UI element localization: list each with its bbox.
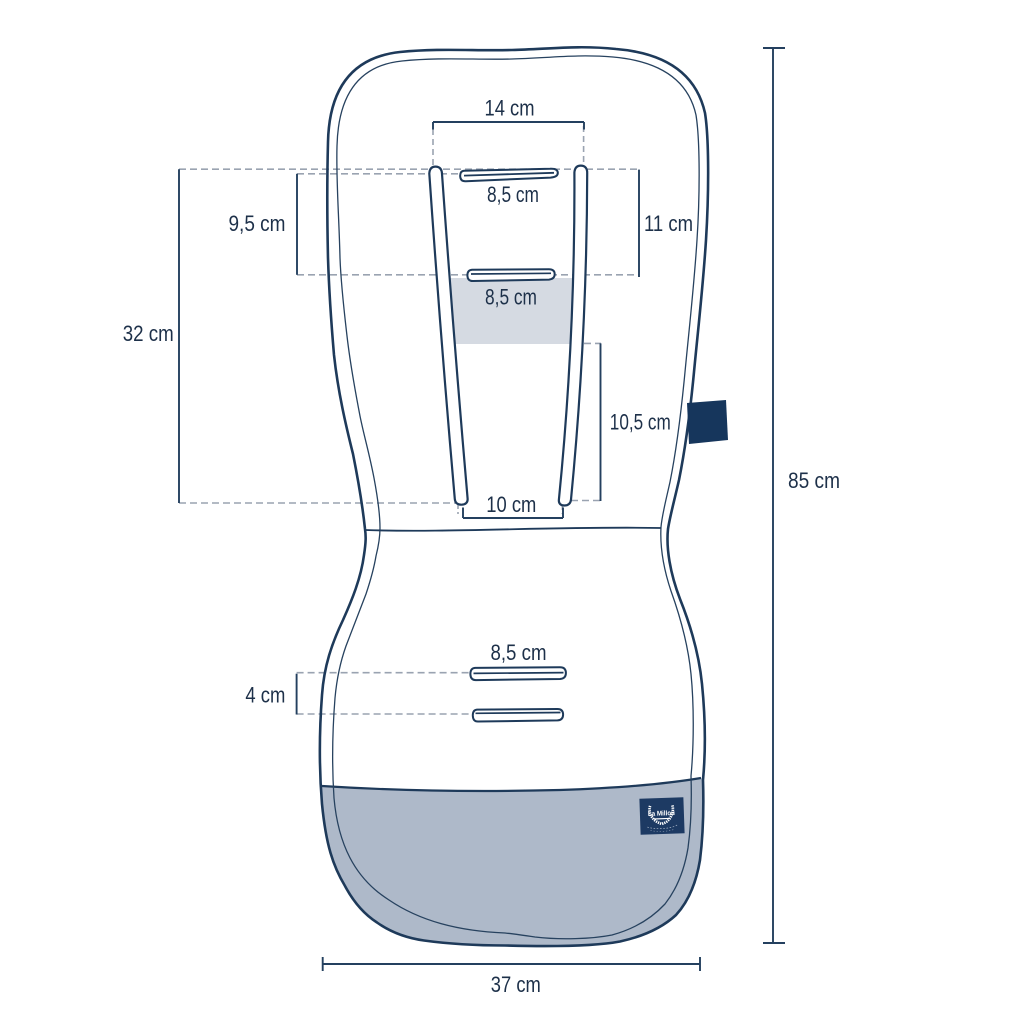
svg-text:8,5 cm: 8,5 cm (487, 182, 539, 207)
svg-text:32 cm: 32 cm (123, 321, 174, 346)
svg-text:14 cm: 14 cm (485, 96, 535, 121)
svg-text:85 cm: 85 cm (788, 468, 840, 493)
svg-text:La Millou: La Millou (648, 810, 675, 818)
svg-text:9,5 cm: 9,5 cm (229, 211, 286, 236)
svg-text:8,5 cm: 8,5 cm (491, 640, 547, 665)
svg-text:37 cm: 37 cm (491, 972, 541, 997)
svg-text:10,5 cm: 10,5 cm (610, 410, 671, 435)
svg-text:11 cm: 11 cm (644, 211, 693, 236)
svg-text:4 cm: 4 cm (245, 683, 285, 708)
svg-text:8,5 cm: 8,5 cm (485, 285, 537, 310)
svg-text:10 cm: 10 cm (486, 492, 536, 517)
